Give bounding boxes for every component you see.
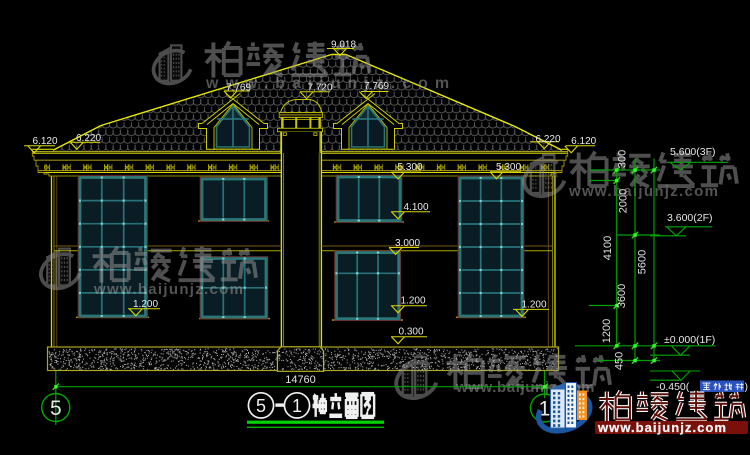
svg-text:5600: 5600 [637,250,649,274]
svg-text:www.baijunjz.com: www.baijunjz.com [568,183,719,200]
svg-text:7.720: 7.720 [307,83,332,94]
svg-text:300: 300 [617,150,629,168]
svg-text:6.220: 6.220 [76,133,101,144]
svg-text:5: 5 [256,396,266,416]
svg-text:1200: 1200 [601,319,613,343]
svg-text:5.300: 5.300 [397,162,422,173]
svg-text:1.200: 1.200 [400,296,425,307]
svg-text:): ) [745,381,749,393]
svg-text:6.120: 6.120 [571,136,596,147]
svg-text:2000: 2000 [618,189,630,213]
svg-text:-0.450(: -0.450( [656,381,690,393]
svg-text:14760: 14760 [285,374,316,386]
svg-text:0.300: 0.300 [398,327,423,338]
svg-text:3600: 3600 [616,284,628,308]
svg-text:±0.000(1F): ±0.000(1F) [664,334,715,346]
svg-text:9.018: 9.018 [331,40,356,51]
svg-text:450: 450 [614,352,626,370]
svg-text:7.769: 7.769 [364,81,389,92]
svg-text:6.220: 6.220 [535,134,560,145]
svg-text:5: 5 [50,397,62,420]
svg-text:www.baijunjz.com: www.baijunjz.com [93,281,244,298]
svg-text:1.200: 1.200 [521,300,546,311]
svg-text:3.000: 3.000 [395,238,420,249]
svg-text:www.baijunjz.com: www.baijunjz.com [597,420,727,435]
svg-text:4100: 4100 [602,236,614,260]
svg-text:6.120: 6.120 [32,136,57,147]
svg-text:4.100: 4.100 [403,202,428,213]
svg-text:1.200: 1.200 [133,299,158,310]
svg-text:1: 1 [292,396,302,416]
svg-text:3.600(2F): 3.600(2F) [667,212,713,224]
svg-text:5.600(3F): 5.600(3F) [670,146,716,158]
svg-text:7.769: 7.769 [226,83,251,94]
svg-text:5.300: 5.300 [496,162,521,173]
